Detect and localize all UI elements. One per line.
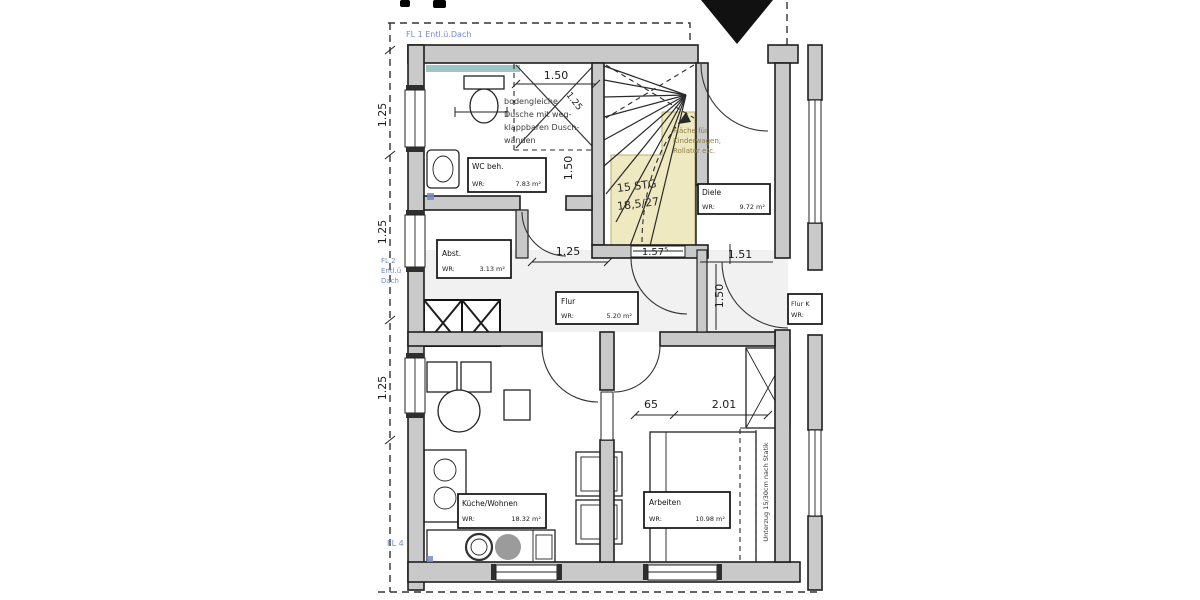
dim-stair-width: 1.57⁵ xyxy=(642,247,668,258)
dim-bath-height: 1.50 xyxy=(562,156,575,181)
dim-left-b: 1.25 xyxy=(376,220,389,245)
wall-mid-right xyxy=(660,332,775,346)
wall-mid-left xyxy=(408,332,542,346)
fl1-label: FL 1 Entl.ü.Dach xyxy=(406,30,471,39)
unterzug-note: Unterzug 15/30cm nach Statik xyxy=(762,442,770,541)
room-area-diele: 9.72 m² xyxy=(740,203,766,211)
chair-icon xyxy=(504,390,530,420)
fl4-label: FL 4 xyxy=(387,539,404,548)
room-area-abst: 3.13 m² xyxy=(480,265,506,273)
cut-off-glyph xyxy=(433,0,446,8)
kinderwagen-note-line2: Kinderwagen, xyxy=(673,137,721,145)
room-name-kueche: Küche/Wohnen xyxy=(462,499,518,508)
cooktop-icon xyxy=(495,534,521,560)
wall-neighbour-low xyxy=(808,335,822,430)
wall-bath-bottom-left xyxy=(424,196,520,210)
blue-dot xyxy=(427,193,434,200)
toilet-bowl-icon xyxy=(470,89,498,123)
dim-diele-height: 1.50 xyxy=(713,284,726,309)
room-wr-diele: WR: xyxy=(702,203,715,211)
wall-bottom xyxy=(408,562,800,582)
floor-plan-drawing: WC beh. WR: 7.83 m² Diele WR: 9.72 m² Ab… xyxy=(0,0,1200,600)
dim-flur-width: 1.25 xyxy=(556,245,581,258)
wall-stair-left xyxy=(592,63,604,245)
room-name-wc: WC beh. xyxy=(472,162,504,171)
dim-bath-width: 1.50 xyxy=(544,69,569,82)
room-area-flur: 5.20 m² xyxy=(607,312,633,320)
room-wr-kueche: WR: xyxy=(462,515,475,523)
shower-note-line1: bodengleiche xyxy=(504,97,558,106)
door-leaf-center xyxy=(601,392,613,440)
kinderwagen-note-line3: Rollator etc. xyxy=(673,147,715,155)
room-name-abst: Abst. xyxy=(442,249,461,258)
room-wr-flur: WR: xyxy=(561,312,574,320)
floor-plan-page: WC beh. WR: 7.83 m² Diele WR: 9.72 m² Ab… xyxy=(0,0,1200,600)
wall-stair-right xyxy=(696,63,708,185)
dim-arbeiten-201: 2.01 xyxy=(712,398,737,411)
room-name-diele: Diele xyxy=(702,188,722,197)
wall-top-entry-stub xyxy=(768,45,798,63)
chair-icon xyxy=(461,362,491,392)
room-name-arbeiten: Arbeiten xyxy=(649,498,681,507)
label-box-flur-k xyxy=(788,294,822,324)
wall-bath-bottom-right xyxy=(566,196,592,210)
wall-neighbour-mid xyxy=(808,223,822,270)
dim-arbeiten-65: 65 xyxy=(644,398,658,411)
kinderwagen-note-line1: Fläche für xyxy=(673,127,708,135)
fl2-label-line3: Dach xyxy=(381,277,399,285)
wall-center-lower xyxy=(600,440,614,562)
wall-center-upper xyxy=(600,332,614,390)
room-wr-wc: WR: xyxy=(472,180,485,188)
dim-left-a: 1.25 xyxy=(376,103,389,128)
shower-note-line4: wänden xyxy=(504,136,536,145)
wall-right-upper xyxy=(775,63,790,258)
room-wr-flur-k: WR: xyxy=(791,311,804,319)
room-wr-abst: WR: xyxy=(442,265,455,273)
room-name-flur-k: Flur K xyxy=(791,300,810,308)
fl2-label-line1: FL 2 xyxy=(381,257,396,265)
shower-note-line3: klappbaren Dusch- xyxy=(504,123,579,132)
fl2-label-line2: Entl.ü xyxy=(381,267,401,275)
wall-neighbour-bottom xyxy=(808,516,822,590)
kitchen-sink-icon xyxy=(466,534,492,560)
table-icon xyxy=(438,390,480,432)
room-area-wc: 7.83 m² xyxy=(516,180,542,188)
wall-neighbour-top xyxy=(808,45,822,100)
room-area-kueche: 18.32 m² xyxy=(511,515,541,523)
room-area-arbeiten: 10.98 m² xyxy=(695,515,725,523)
room-name-flur: Flur xyxy=(561,297,576,306)
shower-note-line2: Dusche mit weg- xyxy=(504,110,572,119)
sofa-seat xyxy=(576,452,622,496)
bathroom-teal-strip xyxy=(426,65,520,72)
cut-off-glyph xyxy=(400,0,410,7)
sofa-seat xyxy=(576,500,622,544)
dim-left-c: 1.25 xyxy=(376,376,389,401)
blue-dot xyxy=(427,556,433,562)
chair-icon xyxy=(427,362,457,392)
dim-diele-width: 1.51 xyxy=(728,248,753,261)
wall-right-lower xyxy=(775,330,790,562)
wall-top xyxy=(408,45,698,63)
toilet-tank xyxy=(464,76,504,89)
room-wr-arbeiten: WR: xyxy=(649,515,662,523)
